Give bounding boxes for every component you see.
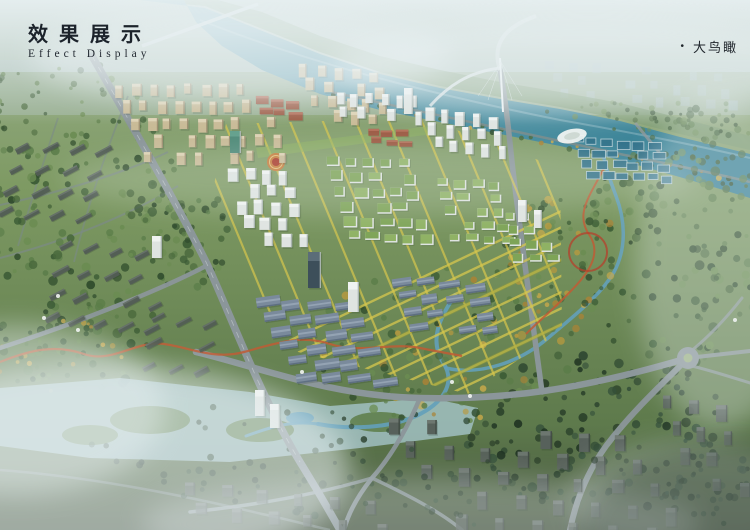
green-roof <box>526 240 536 248</box>
tree <box>563 365 571 373</box>
tree <box>558 235 563 240</box>
building-roof <box>427 420 436 424</box>
green-roof <box>484 237 493 243</box>
building-side <box>624 435 625 451</box>
building-side <box>358 282 359 312</box>
tree <box>569 331 574 336</box>
building-side <box>453 446 454 460</box>
building-side <box>453 125 454 139</box>
tree <box>568 227 573 232</box>
tree <box>523 302 528 307</box>
building-roof <box>282 234 293 237</box>
tree <box>536 309 541 314</box>
building-side <box>229 136 230 146</box>
building-side <box>551 431 552 449</box>
tree <box>9 247 13 251</box>
building-roof <box>480 448 490 451</box>
tree <box>134 328 140 334</box>
tree <box>529 378 534 383</box>
tree <box>94 274 100 280</box>
tree <box>554 471 561 478</box>
tent-pavilion <box>450 380 454 384</box>
tree <box>588 304 596 312</box>
tree <box>361 436 368 443</box>
tree <box>708 433 717 442</box>
building-roof <box>154 134 163 137</box>
building-roof <box>540 431 551 435</box>
tree <box>549 285 553 289</box>
building-roof <box>615 435 626 439</box>
tree <box>169 253 176 260</box>
tree <box>43 181 49 187</box>
tree <box>489 440 495 446</box>
tree <box>627 387 631 391</box>
tree <box>89 307 93 311</box>
tree <box>557 337 565 345</box>
view-label: • 大鸟瞰 <box>680 37 738 56</box>
tree <box>86 281 95 290</box>
tree <box>551 140 554 143</box>
tree <box>509 439 513 443</box>
treatment-pond <box>617 141 630 149</box>
building-roof <box>152 236 162 242</box>
slide-title-english: Effect Display <box>28 48 152 60</box>
tree <box>122 345 125 348</box>
tree <box>417 388 422 393</box>
building-roof <box>206 135 216 138</box>
tree <box>604 219 608 223</box>
building-roof <box>259 218 270 221</box>
tree <box>213 259 219 265</box>
tree <box>141 236 146 241</box>
building-side <box>320 252 321 288</box>
green-roof <box>513 254 522 262</box>
tree <box>662 422 671 431</box>
bullet-icon: • <box>680 41 684 52</box>
tree <box>43 270 49 276</box>
tree <box>627 319 632 324</box>
campus-roof <box>371 137 381 139</box>
building-roof <box>308 252 321 261</box>
tree <box>658 412 663 417</box>
tree <box>602 370 607 375</box>
tree <box>492 423 498 429</box>
green-roof <box>361 218 373 227</box>
building-roof <box>348 282 359 290</box>
tree <box>519 136 524 141</box>
building-side <box>244 136 245 147</box>
tree <box>632 420 640 428</box>
tree <box>128 211 136 219</box>
tree <box>616 394 622 400</box>
treatment-pond <box>638 151 648 159</box>
tree <box>607 272 615 280</box>
building-roof <box>421 465 432 469</box>
tree <box>606 323 611 328</box>
building-roof <box>406 441 416 445</box>
tree <box>518 363 528 373</box>
tree <box>581 391 586 396</box>
effect-display-slide: 效果展示 Effect Display • 大鸟瞰 <box>0 0 750 530</box>
treatment-pond <box>632 142 644 151</box>
tree <box>121 263 129 271</box>
tree <box>87 302 91 306</box>
building-side <box>468 127 469 140</box>
building-side <box>435 420 436 434</box>
green-roof <box>398 218 411 226</box>
tree <box>371 278 378 285</box>
tree <box>507 378 514 385</box>
green-roof <box>506 213 513 219</box>
tree <box>92 294 96 298</box>
tree <box>173 236 180 243</box>
tree <box>70 140 76 146</box>
tree <box>1 147 7 153</box>
green-roof <box>381 218 394 224</box>
tree <box>127 339 136 348</box>
tree <box>498 402 504 408</box>
building-roof <box>244 215 255 218</box>
tree <box>579 314 585 320</box>
tree <box>360 458 366 464</box>
tree <box>129 253 133 257</box>
tree <box>4 272 12 280</box>
tree <box>582 300 589 307</box>
campus-roof <box>381 130 393 132</box>
tree <box>567 448 574 455</box>
tree <box>572 325 580 333</box>
green-roof <box>530 255 540 260</box>
tree <box>409 447 414 452</box>
building-roof <box>444 446 453 450</box>
tree <box>384 400 388 404</box>
tree <box>145 213 149 217</box>
tree <box>125 288 131 294</box>
tree <box>574 358 582 366</box>
tree <box>342 417 346 421</box>
building-side <box>500 131 501 145</box>
tent-pavilion <box>56 294 60 298</box>
tree <box>223 226 230 233</box>
building-side <box>286 218 287 230</box>
building-roof <box>389 419 400 423</box>
tree <box>218 236 224 242</box>
tree <box>350 451 356 457</box>
tree <box>599 286 603 290</box>
tree <box>579 261 586 268</box>
tree <box>32 203 37 208</box>
tree <box>422 379 429 386</box>
tree <box>194 283 202 291</box>
tree <box>7 146 14 153</box>
tree <box>84 325 90 331</box>
tree <box>89 328 93 332</box>
tree <box>567 221 571 225</box>
tree <box>120 225 125 230</box>
building-roof <box>579 434 590 439</box>
tree <box>482 421 489 428</box>
tree <box>138 212 142 216</box>
tree <box>517 331 526 340</box>
tree <box>182 232 187 237</box>
green-roof <box>416 220 426 229</box>
tree <box>598 270 603 275</box>
tree <box>579 413 588 422</box>
tree <box>594 402 599 407</box>
fog-bank <box>60 144 700 216</box>
tree <box>554 441 561 448</box>
green-roof <box>403 235 412 243</box>
tree <box>83 133 89 139</box>
tree <box>421 403 427 409</box>
tree <box>61 319 66 324</box>
tree <box>545 223 552 230</box>
tree <box>480 385 487 392</box>
aerial-render-image <box>0 0 750 530</box>
tree <box>536 274 542 280</box>
tree <box>485 459 489 463</box>
building-side <box>704 427 705 442</box>
tree <box>534 457 541 464</box>
tree <box>392 413 397 418</box>
tree <box>468 442 473 447</box>
tent-pavilion <box>42 316 46 320</box>
tree <box>619 289 626 296</box>
building-roof <box>221 136 230 138</box>
tree <box>89 325 93 329</box>
tree <box>650 135 655 140</box>
building-roof <box>230 131 241 137</box>
building-side <box>162 134 163 148</box>
tree <box>471 276 478 283</box>
tree <box>106 229 113 236</box>
green-roof <box>497 224 508 230</box>
tree <box>539 141 544 146</box>
green-roof <box>509 226 517 234</box>
building-side <box>214 135 215 148</box>
building-roof <box>459 468 471 473</box>
tree <box>110 236 117 243</box>
building-roof <box>518 452 529 456</box>
tent-pavilion <box>300 370 304 374</box>
tree <box>496 408 504 416</box>
tree <box>500 372 507 379</box>
building-roof <box>557 454 568 458</box>
tree <box>608 256 615 263</box>
tree <box>215 265 221 271</box>
tree <box>387 348 394 355</box>
tree <box>180 256 188 264</box>
tree <box>128 310 137 319</box>
tree <box>497 451 506 460</box>
tree <box>14 217 22 225</box>
building-side <box>291 234 292 247</box>
tree <box>626 207 634 215</box>
tree <box>1 125 7 131</box>
view-label-text: 大鸟瞰 <box>693 37 738 56</box>
building-side <box>272 232 273 245</box>
tree <box>592 220 600 228</box>
green-roof <box>465 222 474 228</box>
tree <box>43 309 48 314</box>
tree <box>560 409 566 415</box>
green-roof <box>524 227 534 233</box>
green-roof <box>510 239 520 245</box>
tree <box>599 437 604 442</box>
tree <box>29 260 38 269</box>
tree <box>463 418 470 425</box>
tree <box>142 247 146 251</box>
campus-roof <box>387 140 398 142</box>
tree <box>96 299 105 308</box>
tree <box>449 330 454 335</box>
tree <box>681 418 691 428</box>
building-side <box>589 434 590 452</box>
green-roof <box>450 234 458 240</box>
tree <box>475 430 480 435</box>
building-roof <box>278 218 287 221</box>
tree <box>381 315 387 321</box>
tree <box>199 278 207 286</box>
industrial-shed <box>421 293 439 307</box>
tree <box>167 262 171 266</box>
tree <box>514 420 522 428</box>
tree <box>31 129 37 135</box>
building-roof <box>498 472 509 475</box>
building-side <box>680 421 681 435</box>
green-roof <box>344 216 356 226</box>
tree <box>59 229 67 237</box>
tree <box>48 204 52 208</box>
green-roof <box>365 232 378 239</box>
tree <box>543 396 548 401</box>
tree <box>611 338 617 344</box>
green-roof <box>547 255 558 261</box>
tree <box>574 250 580 256</box>
tree <box>580 250 586 256</box>
green-roof <box>421 234 433 243</box>
building-side <box>485 129 486 139</box>
tree <box>577 367 582 372</box>
tree <box>631 431 635 435</box>
campus-roof <box>368 129 379 131</box>
green-roof <box>542 243 551 251</box>
tree <box>582 362 589 369</box>
tree <box>454 328 459 333</box>
tree <box>590 411 595 416</box>
tree <box>70 132 77 139</box>
tree <box>220 213 226 219</box>
tree <box>572 433 579 440</box>
tree <box>491 465 497 471</box>
tree <box>206 210 211 215</box>
tree <box>406 353 414 361</box>
tree <box>15 210 22 217</box>
industrial-shed <box>339 359 359 374</box>
building-side <box>254 215 255 228</box>
slide-title-chinese: 效果展示 <box>28 24 152 46</box>
tree <box>406 387 410 391</box>
tree <box>432 412 436 416</box>
green-roof <box>349 231 359 237</box>
tree <box>87 322 90 325</box>
tree <box>520 376 527 383</box>
tree <box>612 127 616 131</box>
green-roof <box>466 234 477 240</box>
tree <box>562 395 568 401</box>
tree <box>27 173 36 182</box>
tree <box>219 259 225 265</box>
tree <box>13 195 20 202</box>
tree <box>514 334 518 338</box>
tree <box>84 161 88 165</box>
tree <box>559 468 564 473</box>
tree <box>634 378 642 386</box>
tree <box>599 224 605 230</box>
tree <box>405 374 410 379</box>
tree <box>13 269 17 273</box>
tree <box>591 442 600 451</box>
tree <box>554 352 562 360</box>
tree <box>629 240 633 244</box>
tree <box>172 223 177 228</box>
treatment-pond <box>586 138 596 144</box>
building-side <box>528 452 529 468</box>
tree <box>614 359 624 369</box>
tree <box>656 422 662 428</box>
tree <box>29 219 38 228</box>
tree <box>143 217 149 223</box>
tree <box>163 234 170 241</box>
tree <box>64 133 69 138</box>
tree <box>545 302 550 307</box>
tree <box>134 204 143 213</box>
tree <box>647 128 651 132</box>
campus-roof <box>396 130 409 132</box>
tree <box>330 410 334 414</box>
green-roof <box>482 221 494 228</box>
tree <box>468 434 476 442</box>
tree <box>558 230 563 235</box>
tree <box>157 273 164 280</box>
tent-pavilion <box>76 328 80 332</box>
building-side <box>269 218 270 230</box>
tree <box>463 409 469 415</box>
tree <box>53 250 62 259</box>
tree <box>477 415 483 421</box>
building-side <box>195 135 196 147</box>
tree <box>82 263 91 272</box>
tree <box>115 315 119 319</box>
tree <box>609 264 615 270</box>
tree <box>14 253 21 260</box>
tree <box>47 301 55 309</box>
building-roof <box>537 474 548 478</box>
tree <box>608 387 617 396</box>
tree <box>79 131 84 136</box>
tree <box>24 237 32 245</box>
tree <box>631 294 637 300</box>
building-side <box>541 210 542 228</box>
treatment-pond <box>601 139 612 147</box>
tree <box>158 229 163 234</box>
building-side <box>399 419 400 435</box>
tree <box>607 283 615 291</box>
campus-roof <box>399 141 412 143</box>
tree <box>349 424 355 430</box>
tree <box>369 405 378 414</box>
tree <box>586 274 593 281</box>
